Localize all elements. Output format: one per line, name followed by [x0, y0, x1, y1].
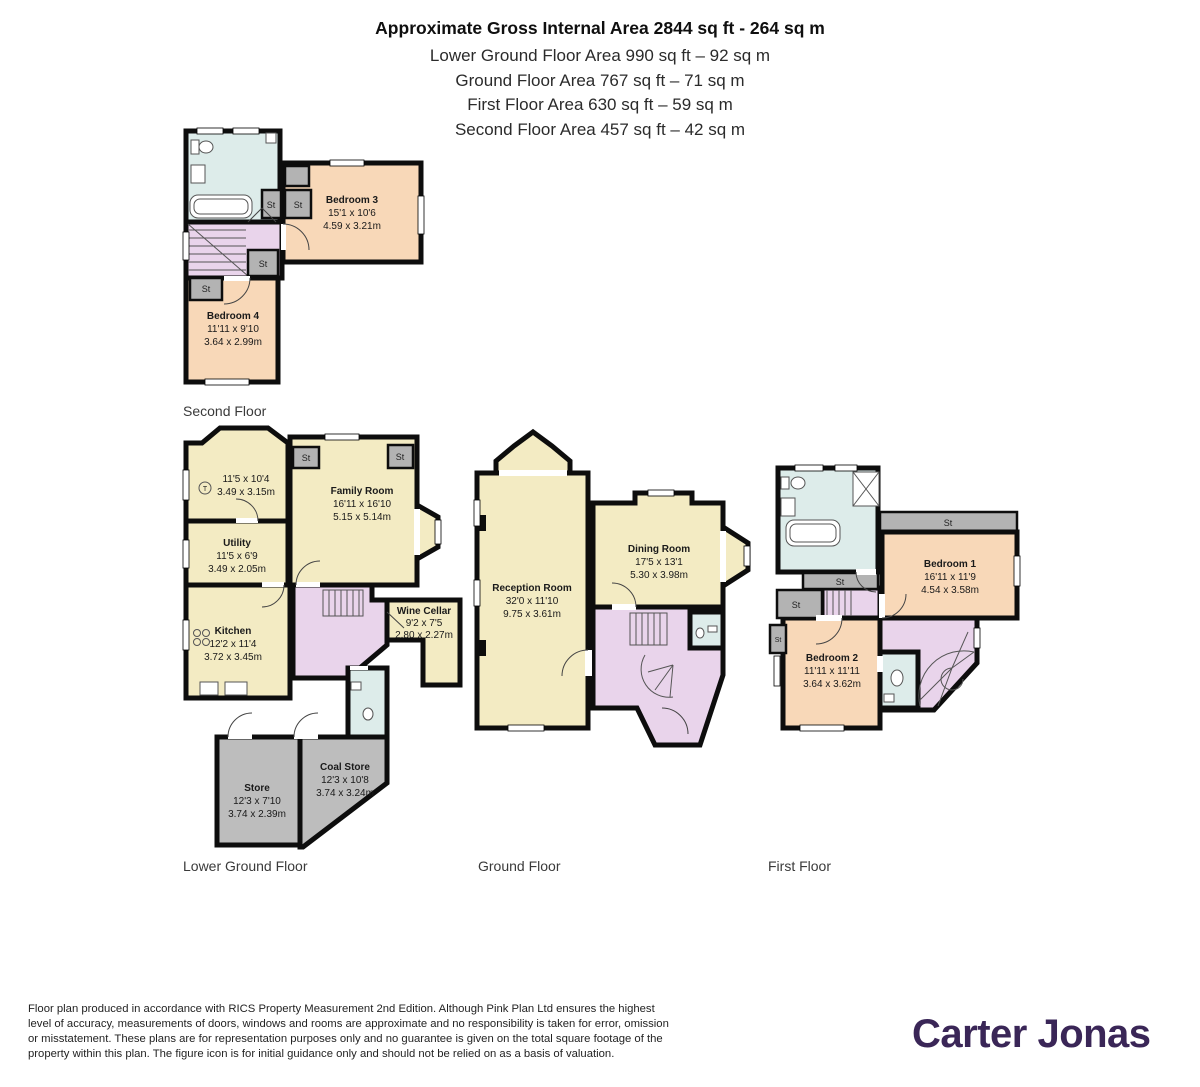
svg-text:16'11 x 11'9: 16'11 x 11'9 [924, 572, 976, 583]
svg-text:Reception Room: Reception Room [492, 583, 572, 594]
disclaimer-line: level of accuracy, measurements of doors… [28, 1017, 669, 1032]
disclaimer: Floor plan produced in accordance with R… [28, 1002, 669, 1062]
svg-text:Wine Cellar: Wine Cellar [397, 606, 451, 617]
subtitle-ground: Ground Floor Area 767 sq ft – 71 sq m [0, 69, 1200, 94]
svg-text:Bedroom 2: Bedroom 2 [806, 653, 859, 664]
svg-text:4.54 x 3.58m: 4.54 x 3.58m [921, 585, 979, 596]
svg-text:9.75 x 3.61m: 9.75 x 3.61m [503, 609, 561, 620]
svg-text:3.49 x 3.15m: 3.49 x 3.15m [217, 487, 275, 498]
first-floor-plan: St St St St Bedroom 1 16'11 x 11'9 4.54 … [762, 450, 1028, 755]
subtitle-lower-ground: Lower Ground Floor Area 990 sq ft – 92 s… [0, 44, 1200, 69]
caption-ground-floor: Ground Floor [478, 858, 560, 874]
svg-text:Store: Store [244, 783, 270, 794]
svg-text:3.72 x 3.45m: 3.72 x 3.45m [204, 652, 262, 663]
storage-label: St [202, 284, 211, 294]
room-label-bedroom-2: Bedroom 2 11'11 x 11'11 3.64 x 3.62m [803, 653, 861, 690]
disclaimer-line: or misstatement. These plans are for rep… [28, 1032, 669, 1047]
svg-text:3.64 x 2.99m: 3.64 x 2.99m [204, 337, 262, 348]
svg-text:16'11 x 16'10: 16'11 x 16'10 [333, 499, 392, 510]
svg-text:12'3 x 10'8: 12'3 x 10'8 [321, 775, 369, 786]
svg-text:12'3 x 7'10: 12'3 x 7'10 [233, 796, 281, 807]
svg-text:5.30 x 3.98m: 5.30 x 3.98m [630, 570, 688, 581]
svg-text:2.80 x 2.27m: 2.80 x 2.27m [395, 630, 453, 641]
svg-text:Kitchen: Kitchen [215, 626, 252, 637]
svg-text:3.49 x 2.05m: 3.49 x 2.05m [208, 564, 266, 575]
page-title: Approximate Gross Internal Area 2844 sq … [0, 18, 1200, 39]
svg-text:3.64 x 3.62m: 3.64 x 3.62m [803, 679, 861, 690]
svg-text:Bedroom 4: Bedroom 4 [207, 311, 260, 322]
svg-text:3.74 x 3.24m: 3.74 x 3.24m [316, 788, 374, 799]
second-floor-plan: St St St St Bedroom 3 15'1 x 10'6 4.59 x… [170, 118, 440, 408]
storage-label: St [302, 453, 311, 463]
caption-first-floor: First Floor [768, 858, 831, 874]
disclaimer-line: Floor plan produced in accordance with R… [28, 1002, 669, 1017]
svg-text:12'2 x 11'4: 12'2 x 11'4 [209, 639, 256, 650]
storage-label: St [792, 600, 801, 610]
svg-text:Dining Room: Dining Room [628, 544, 690, 555]
svg-text:T: T [203, 486, 208, 493]
room-label-family: Family Room 16'11 x 16'10 5.15 x 5.14m [331, 486, 394, 523]
room-hall-stairs [293, 585, 387, 678]
svg-text:Coal Store: Coal Store [320, 762, 370, 773]
storage-label: St [294, 200, 303, 210]
svg-text:Bedroom 1: Bedroom 1 [924, 559, 977, 570]
svg-text:11'11 x 11'11: 11'11 x 11'11 [804, 666, 860, 677]
reception-bay [496, 432, 570, 473]
lower-ground-floor-plan: T St St 11'5 x 10'4 3.49 x 3.15m Utility… [170, 418, 470, 858]
disclaimer-line: property within this plan. The figure ic… [28, 1047, 669, 1062]
caption-second-floor: Second Floor [183, 403, 266, 419]
svg-text:Utility: Utility [223, 538, 251, 549]
storage-label: St [775, 637, 782, 644]
storage-label: St [944, 518, 953, 528]
room-wc [348, 668, 387, 737]
svg-text:Bedroom 3: Bedroom 3 [326, 195, 379, 206]
storage-label: St [267, 200, 276, 210]
svg-text:5.15 x 5.14m: 5.15 x 5.14m [333, 512, 391, 523]
svg-text:Family Room: Family Room [331, 486, 394, 497]
room-label-dining: Dining Room 17'5 x 13'1 5.30 x 3.98m [628, 544, 690, 581]
svg-text:11'5 x 10'4: 11'5 x 10'4 [222, 474, 269, 485]
room-wc [690, 612, 723, 648]
room-label-bedroom-4: Bedroom 4 11'11 x 9'10 3.64 x 2.99m [204, 311, 262, 348]
subtitle-first: First Floor Area 630 sq ft – 59 sq m [0, 93, 1200, 118]
svg-text:15'1 x 10'6: 15'1 x 10'6 [328, 208, 376, 219]
caption-lower-ground-floor: Lower Ground Floor [183, 858, 308, 874]
carter-jonas-logo: Carter Jonas [912, 1012, 1151, 1057]
storage-label: St [259, 259, 268, 269]
svg-text:11'11 x 9'10: 11'11 x 9'10 [207, 324, 259, 335]
svg-text:9'2 x 7'5: 9'2 x 7'5 [406, 618, 443, 629]
storage-label: St [836, 577, 845, 587]
svg-text:4.59 x 3.21m: 4.59 x 3.21m [323, 221, 381, 232]
storage-label: St [396, 452, 405, 462]
storage-closet [285, 166, 309, 186]
room-label-coal-store: Coal Store 12'3 x 10'8 3.74 x 3.24m [316, 762, 374, 799]
svg-text:32'0 x 11'10: 32'0 x 11'10 [506, 596, 559, 607]
room-label-bedroom-1: Bedroom 1 16'11 x 11'9 4.54 x 3.58m [921, 559, 979, 596]
svg-text:3.74 x 2.39m: 3.74 x 2.39m [228, 809, 286, 820]
svg-text:11'5 x 6'9: 11'5 x 6'9 [216, 551, 258, 562]
svg-text:17'5 x 13'1: 17'5 x 13'1 [635, 557, 683, 568]
ground-floor-plan: Reception Room 32'0 x 11'10 9.75 x 3.61m… [468, 418, 768, 753]
room-label-bedroom-3: Bedroom 3 15'1 x 10'6 4.59 x 3.21m [323, 195, 381, 232]
